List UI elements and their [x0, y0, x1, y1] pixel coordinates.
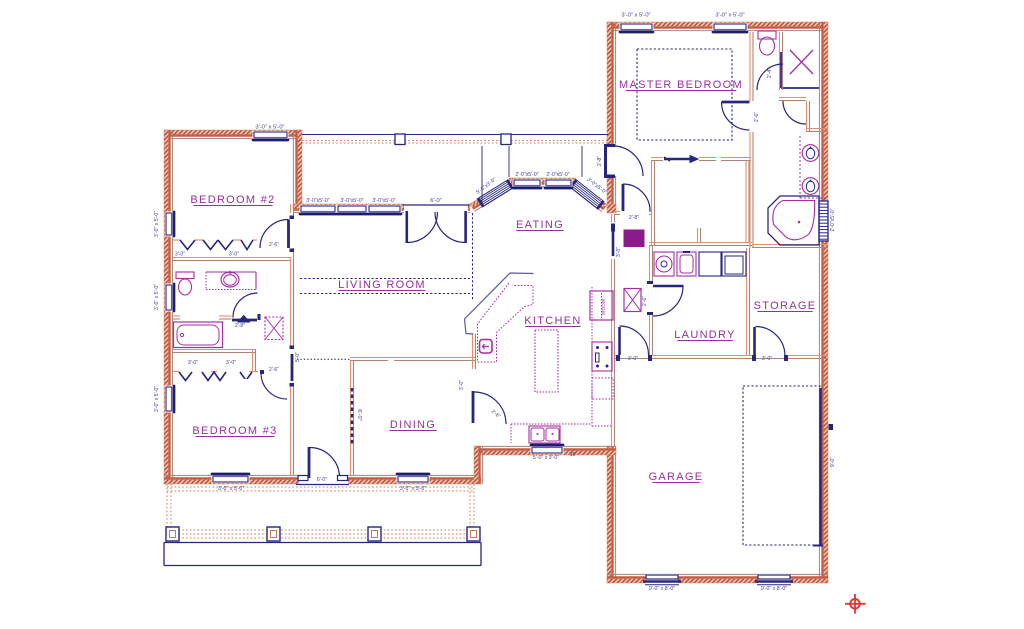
- svg-text:3'-0"x5'-0": 3'-0"x5'-0": [306, 198, 329, 204]
- svg-text:3'-0": 3'-0": [175, 252, 185, 258]
- svg-text:3'-0" x 5'-0": 3'-0" x 5'-0": [400, 486, 426, 492]
- svg-text:3'-0": 3'-0": [762, 356, 772, 362]
- svg-text:DINING: DINING: [390, 419, 436, 431]
- svg-text:3'-0": 3'-0": [226, 360, 236, 366]
- svg-text:BEDROOM #3: BEDROOM #3: [192, 425, 277, 437]
- svg-text:3'-0" x 5'-0": 3'-0" x 5'-0": [154, 284, 160, 310]
- svg-text:2'-6": 2'-6": [642, 296, 648, 306]
- svg-text:9'-0" x 8'-0": 9'-0" x 8'-0": [649, 586, 675, 592]
- svg-text:6'-0": 6'-0": [356, 409, 362, 421]
- svg-text:3'-0"x5'-0": 3'-0"x5'-0": [372, 198, 395, 204]
- svg-text:EATING: EATING: [516, 219, 564, 231]
- svg-text:2'-8": 2'-8": [597, 156, 603, 166]
- svg-text:2'-4": 2'-4": [767, 68, 773, 78]
- svg-text:9'-0" x 8'-0": 9'-0" x 8'-0": [761, 586, 787, 592]
- svg-text:3'-0": 3'-0": [188, 360, 198, 366]
- svg-text:STORAGE: STORAGE: [754, 300, 817, 312]
- svg-text:2'-6": 2'-6": [754, 112, 760, 122]
- svg-text:2'-0"x5'-0": 2'-0"x5'-0": [830, 208, 836, 231]
- svg-text:GARAGE: GARAGE: [649, 471, 704, 483]
- svg-text:MASTER BEDROOM: MASTER BEDROOM: [619, 79, 743, 91]
- svg-text:3'-0" x 5'-0": 3'-0" x 5'-0": [218, 486, 244, 492]
- svg-text:2'-8": 2'-8": [629, 215, 639, 221]
- svg-text:3'-0"x5'-0": 3'-0"x5'-0": [340, 198, 363, 204]
- svg-text:BEDROOM #2: BEDROOM #2: [190, 194, 275, 206]
- svg-text:3'-0" x 5'-0": 3'-0" x 5'-0": [154, 386, 160, 412]
- svg-text:3'-0": 3'-0": [616, 247, 622, 257]
- svg-text:3'-0" x 5'-0": 3'-0" x 5'-0": [255, 125, 284, 131]
- svg-text:LAUNDRY: LAUNDRY: [674, 329, 735, 341]
- svg-text:W'DOW: W'DOW: [601, 298, 606, 315]
- svg-text:2'-8": 2'-8": [235, 323, 245, 329]
- svg-text:3'-0" x 5'-0": 3'-0" x 5'-0": [154, 211, 160, 237]
- svg-text:2'-0"x5'-0": 2'-0"x5'-0": [515, 172, 538, 178]
- svg-text:6'-0": 6'-0": [317, 477, 327, 483]
- svg-text:LIVING ROOM: LIVING ROOM: [338, 279, 426, 291]
- svg-text:2'-0"x5'-0": 2'-0"x5'-0": [546, 172, 569, 178]
- svg-text:16': 16': [570, 452, 577, 458]
- svg-text:3'-0": 3'-0": [229, 252, 239, 258]
- svg-text:3'-0": 3'-0": [459, 380, 465, 390]
- svg-text:3'-0": 3'-0": [628, 356, 638, 362]
- svg-text:9'-0": 9'-0": [830, 457, 836, 467]
- svg-text:6'-0": 6'-0": [430, 198, 442, 204]
- svg-text:2'-6": 2'-6": [269, 367, 279, 373]
- svg-text:2'-6": 2'-6": [269, 242, 279, 248]
- svg-text:5'-0" x 3'-0": 5'-0" x 3'-0": [533, 455, 559, 461]
- svg-text:KITCHEN: KITCHEN: [524, 315, 581, 327]
- svg-text:3'-0" x 5'-0": 3'-0" x 5'-0": [715, 13, 744, 19]
- svg-text:3'-0" x 5'-0": 3'-0" x 5'-0": [621, 13, 650, 19]
- svg-text:5'-0": 5'-0": [295, 352, 301, 362]
